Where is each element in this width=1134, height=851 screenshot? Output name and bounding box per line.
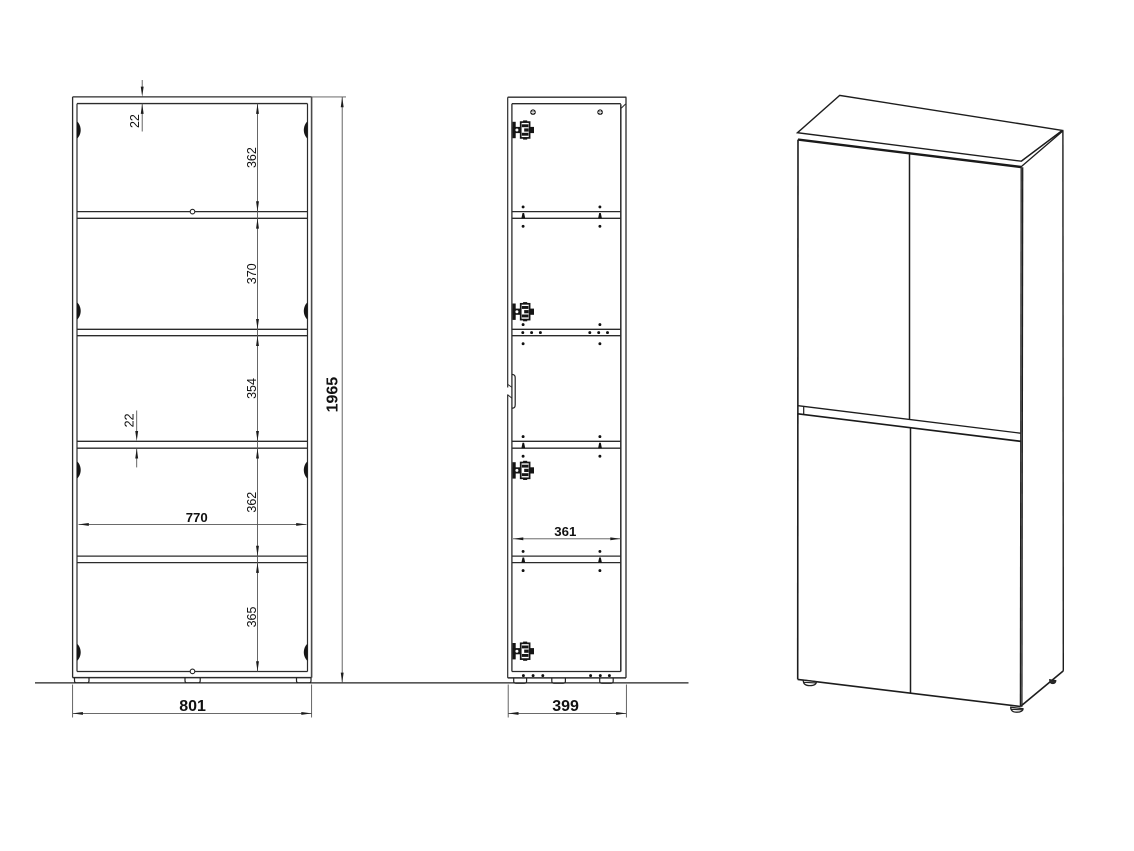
svg-text:365: 365 — [245, 607, 259, 628]
svg-text:1965: 1965 — [324, 377, 341, 413]
svg-text:362: 362 — [245, 492, 259, 513]
svg-text:22: 22 — [128, 114, 142, 128]
svg-text:399: 399 — [552, 698, 579, 715]
svg-text:770: 770 — [186, 510, 208, 525]
svg-text:801: 801 — [179, 698, 206, 715]
svg-text:354: 354 — [245, 378, 259, 399]
svg-text:362: 362 — [245, 147, 259, 168]
svg-text:22: 22 — [123, 413, 137, 427]
svg-text:370: 370 — [245, 263, 259, 284]
svg-text:361: 361 — [554, 524, 576, 539]
